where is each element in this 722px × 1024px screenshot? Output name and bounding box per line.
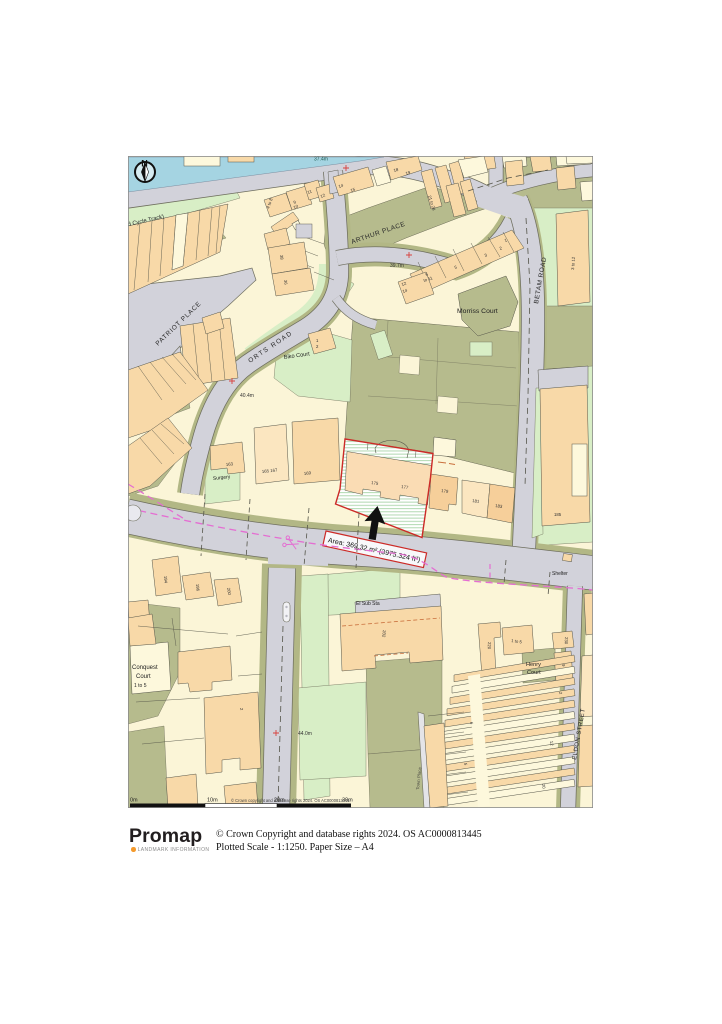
- svg-text:40.4m: 40.4m: [240, 393, 254, 399]
- svg-text:Conquest: Conquest: [132, 665, 158, 671]
- svg-text:230: 230: [564, 637, 569, 645]
- svg-text:© Crown copyright and database: © Crown copyright and database rights 20…: [231, 798, 350, 803]
- svg-text:220: 220: [487, 642, 492, 650]
- svg-text:N: N: [141, 159, 148, 169]
- svg-text:196: 196: [195, 584, 201, 592]
- svg-text:37.4m: 37.4m: [314, 157, 328, 163]
- svg-text:185: 185: [554, 512, 562, 517]
- svg-text:194: 194: [163, 576, 169, 584]
- svg-text:Shelter: Shelter: [552, 571, 568, 577]
- svg-text:Court: Court: [527, 670, 541, 676]
- svg-text:44.0m: 44.0m: [298, 731, 312, 737]
- svg-text:10m: 10m: [207, 798, 218, 804]
- svg-text:Court: Court: [136, 674, 151, 680]
- svg-text:169: 169: [304, 470, 312, 476]
- svg-text:1 to 5: 1 to 5: [134, 683, 147, 689]
- svg-text:39.7m: 39.7m: [390, 263, 404, 269]
- svg-text:163: 163: [226, 461, 234, 467]
- svg-text:Morriss Court: Morriss Court: [457, 308, 498, 315]
- svg-text:202: 202: [381, 630, 387, 638]
- svg-text:El Sub Sta: El Sub Sta: [356, 601, 380, 607]
- svg-text:Henry: Henry: [526, 662, 541, 668]
- svg-text:3 to 12: 3 to 12: [570, 256, 576, 270]
- svg-text:0m: 0m: [130, 798, 138, 804]
